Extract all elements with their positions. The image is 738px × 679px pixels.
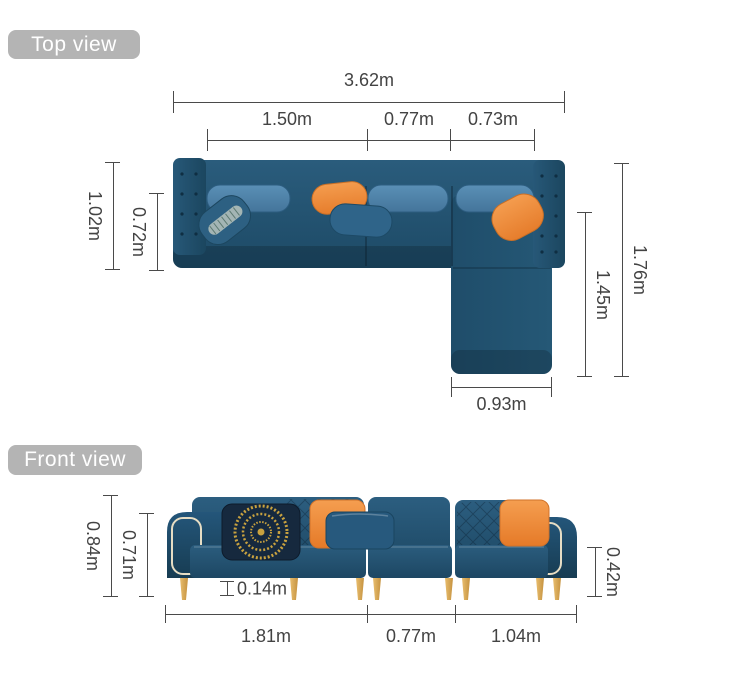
dim-depth-inner-label: 0.72m bbox=[129, 207, 148, 257]
sofa-top-left-armrest bbox=[173, 158, 206, 255]
dim-tick bbox=[576, 605, 577, 623]
dim-chaise-outer-label: 1.76m bbox=[630, 245, 649, 295]
dim-section-left-label: 1.50m bbox=[262, 110, 312, 129]
dim-line bbox=[595, 547, 596, 597]
dim-chaise-outer: 1.76m bbox=[614, 163, 629, 377]
dim-depth-outer: 1.02m bbox=[105, 162, 120, 270]
dim-line bbox=[113, 162, 114, 270]
dim-tick bbox=[455, 605, 456, 623]
dim-line bbox=[585, 212, 586, 377]
dim-tick bbox=[173, 91, 174, 113]
dim-tick bbox=[103, 596, 118, 597]
dim-tick bbox=[614, 376, 629, 377]
dim-tick bbox=[450, 129, 451, 151]
blue-pillow-front bbox=[326, 512, 394, 549]
dim-width-left-label: 1.81m bbox=[241, 627, 291, 646]
dim-tick bbox=[105, 162, 120, 163]
dim-line bbox=[147, 513, 148, 597]
dim-chaise-inner-label: 1.45m bbox=[593, 269, 612, 319]
dim-tick bbox=[103, 495, 118, 496]
orange-pillow-right bbox=[500, 500, 549, 546]
sofa-front-view-illustration bbox=[158, 486, 588, 606]
dim-line bbox=[173, 102, 565, 103]
dim-tick bbox=[207, 129, 208, 151]
dim-tick bbox=[367, 605, 368, 623]
dim-tick bbox=[564, 91, 565, 113]
dim-line bbox=[207, 140, 535, 141]
dim-line bbox=[111, 495, 112, 597]
dim-total-width-label: 3.62m bbox=[344, 71, 394, 90]
dim-tick bbox=[587, 547, 602, 548]
dim-width-middle-label: 0.77m bbox=[386, 627, 436, 646]
dim-tick bbox=[614, 163, 629, 164]
dim-front-widths: 1.81m 0.77m 1.04m bbox=[165, 605, 577, 623]
dim-tick bbox=[139, 513, 154, 514]
front-view-badge: Front view bbox=[8, 445, 142, 475]
dim-line bbox=[157, 193, 158, 271]
dim-tick bbox=[367, 129, 368, 151]
dim-tick bbox=[165, 605, 166, 623]
dim-height-back-label: 0.71m bbox=[119, 530, 138, 580]
dim-section-middle-label: 0.77m bbox=[384, 110, 434, 129]
top-view-badge: Top view bbox=[8, 30, 140, 59]
dim-tick bbox=[534, 129, 535, 151]
medallion-pillow bbox=[222, 504, 300, 560]
dim-line bbox=[165, 614, 577, 615]
dim-tick bbox=[587, 596, 602, 597]
dim-arm-height: 0.42m bbox=[587, 547, 602, 597]
dim-section-right-label: 0.73m bbox=[468, 110, 518, 129]
sofa-legs bbox=[180, 578, 561, 600]
dim-line bbox=[622, 163, 623, 377]
dim-height-back: 0.71m bbox=[139, 513, 154, 597]
dim-arm-height-label: 0.42m bbox=[603, 547, 622, 597]
dim-tick bbox=[105, 269, 120, 270]
dim-height-total: 0.84m bbox=[103, 495, 118, 597]
dim-height-total-label: 0.84m bbox=[83, 521, 102, 571]
dim-tick bbox=[139, 596, 154, 597]
dim-width-right-label: 1.04m bbox=[491, 627, 541, 646]
sofa-top-view-illustration bbox=[160, 150, 580, 385]
product-dimension-diagram: Top view 3.62m 1.50m 0.77m 0.73m 1.02m 0… bbox=[0, 0, 738, 679]
dim-line bbox=[451, 387, 552, 388]
dim-chaise-width-label: 0.93m bbox=[476, 395, 526, 414]
blue-pillow-middle bbox=[329, 203, 393, 238]
dim-section-widths: 1.50m 0.77m 0.73m bbox=[207, 129, 535, 151]
dim-depth-outer-label: 1.02m bbox=[85, 191, 104, 241]
